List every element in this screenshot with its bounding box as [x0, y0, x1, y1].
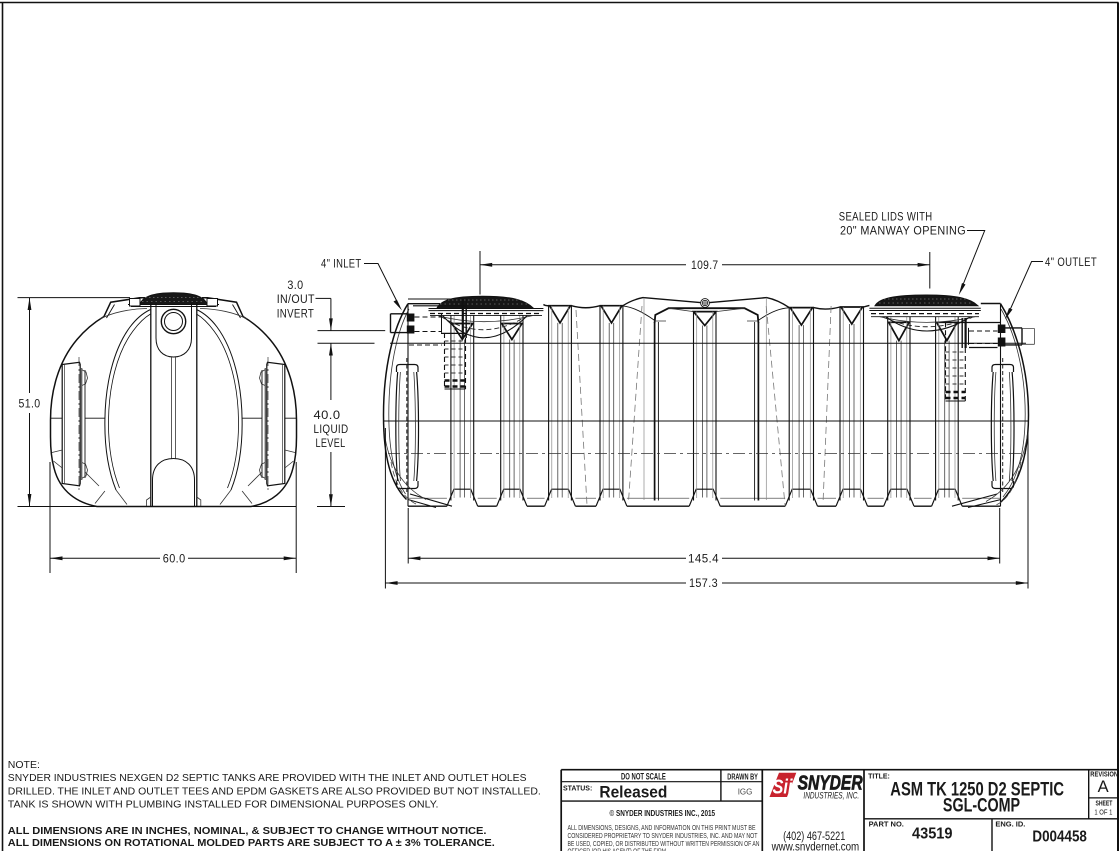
- svg-text:D004458: D004458: [1032, 829, 1087, 846]
- svg-text:60.0: 60.0: [163, 554, 186, 566]
- svg-text:DRILLED. THE INLET AND OUTLET: DRILLED. THE INLET AND OUTLET TEES AND E…: [8, 785, 541, 797]
- svg-text:IN/OUT: IN/OUT: [277, 294, 315, 306]
- svg-text:CONSIDERED PROPRIETARY TO SNYD: CONSIDERED PROPRIETARY TO SNYDER INDUSTR…: [568, 833, 759, 840]
- svg-text:DO NOT SCALE: DO NOT SCALE: [621, 771, 666, 781]
- svg-text:1 OF 1: 1 OF 1: [1094, 807, 1112, 816]
- svg-text:INDUSTRIES, INC.: INDUSTRIES, INC.: [803, 791, 859, 802]
- svg-text:LEVEL: LEVEL: [316, 438, 346, 450]
- svg-text:ENG. ID.: ENG. ID.: [995, 820, 1025, 829]
- svg-text:IGG: IGG: [738, 788, 753, 797]
- svg-text:© SNYDER INDUSTRIES INC., 2015: © SNYDER INDUSTRIES INC., 2015: [610, 808, 716, 818]
- svg-text:A: A: [1098, 778, 1109, 796]
- svg-text:ALL DIMENSIONS, DESIGNS, AND I: ALL DIMENSIONS, DESIGNS, AND INFORMATION…: [568, 825, 756, 832]
- svg-text:BE USED, COPIED, OR DISTRIBUTE: BE USED, COPIED, OR DISTRIBUTED WITHOUT …: [568, 841, 760, 848]
- svg-text:SNYDER INDUSTRIES NEXGEN D2 SE: SNYDER INDUSTRIES NEXGEN D2 SEPTIC TANKS…: [8, 772, 527, 784]
- svg-text:4" OUTLET: 4" OUTLET: [1045, 257, 1097, 269]
- svg-text:109.7: 109.7: [691, 260, 719, 272]
- svg-text:TITLE:: TITLE:: [868, 774, 890, 781]
- svg-text:20" MANWAY OPENING: 20" MANWAY OPENING: [840, 226, 966, 238]
- svg-text:40.0: 40.0: [314, 410, 341, 422]
- svg-text:Released: Released: [599, 782, 667, 801]
- svg-text:ALL DIMENSIONS ON ROTATIONAL M: ALL DIMENSIONS ON ROTATIONAL MOLDED PART…: [8, 837, 495, 849]
- svg-text:NOTE:: NOTE:: [8, 759, 40, 771]
- svg-text:157.3: 157.3: [689, 578, 718, 590]
- svg-text:www.snydernet.com: www.snydernet.com: [771, 842, 859, 851]
- svg-text:STATUS:: STATUS:: [563, 786, 592, 793]
- svg-text:SEALED LIDS WITH: SEALED LIDS WITH: [839, 212, 933, 224]
- svg-text:3.0: 3.0: [287, 280, 303, 292]
- svg-text:PART NO.: PART NO.: [869, 820, 904, 829]
- svg-text:43519: 43519: [912, 825, 953, 842]
- svg-text:SGL-COMP: SGL-COMP: [943, 795, 1020, 816]
- svg-text:LIQUID: LIQUID: [314, 424, 349, 436]
- svg-text:DRAWN BY: DRAWN BY: [727, 772, 758, 781]
- svg-text:Sii: Sii: [773, 777, 793, 799]
- svg-text:145.4: 145.4: [688, 554, 719, 566]
- svg-text:4" INLET: 4" INLET: [321, 259, 362, 271]
- svg-text:ALL DIMENSIONS ARE IN INCHES,: ALL DIMENSIONS ARE IN INCHES, NOMINAL, &…: [8, 825, 487, 837]
- svg-text:INVERT: INVERT: [277, 309, 315, 321]
- svg-text:51.0: 51.0: [19, 399, 41, 411]
- svg-text:TANK IS SHOWN WITH PLUMBING IN: TANK IS SHOWN WITH PLUMBING INSTALLED FO…: [8, 798, 439, 810]
